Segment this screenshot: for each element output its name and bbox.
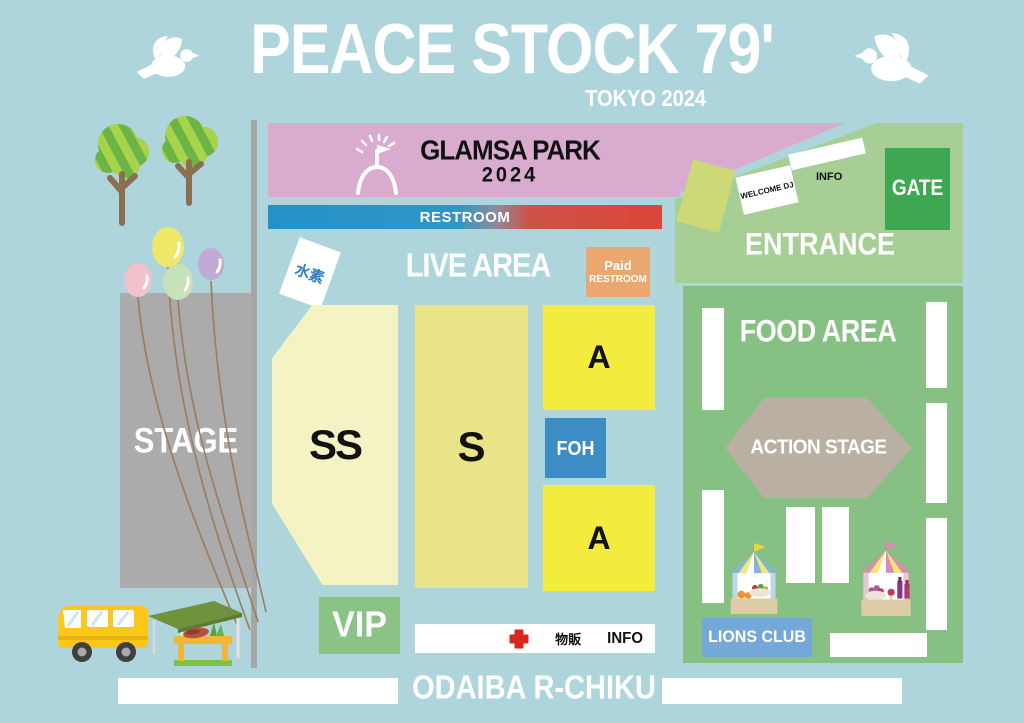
food-stall-tent-icon: [728, 542, 780, 616]
paid-restroom-line2: RESTROOM: [589, 274, 647, 286]
food-area-label: FOOD AREA: [718, 316, 918, 347]
park-year: 2024: [482, 165, 539, 186]
balloons-icon: [118, 212, 268, 632]
block-vip: VIP: [319, 597, 400, 654]
footer-label: ODAIBA R-CHIKU: [404, 672, 664, 705]
lions-club-label: LIONS CLUB: [708, 628, 806, 647]
block-foh-label: FOH: [557, 436, 595, 460]
food-stall-row: [822, 507, 849, 583]
block-a-lower-label: A: [587, 520, 610, 557]
food-stall-row: [830, 633, 927, 657]
block-foh: FOH: [545, 418, 606, 478]
gate-flag-icon: [350, 133, 404, 195]
block-vip-label: VIP: [332, 605, 387, 646]
service-bar: 物販 INFO: [415, 624, 655, 653]
entrance-label: ENTRANCE: [690, 229, 950, 260]
block-a-upper-label: A: [587, 339, 610, 376]
park-name: GLAMSA PARK: [420, 136, 600, 163]
block-a-upper: A: [543, 305, 655, 410]
paid-restroom-line1: Paid: [604, 259, 631, 274]
park-banner-text: GLAMSA PARK 2024: [420, 137, 600, 185]
food-stall-row: [702, 308, 724, 410]
dove-icon: [846, 28, 930, 104]
block-a-lower: A: [543, 485, 655, 591]
block-s-label: S: [457, 423, 485, 471]
food-stall-row: [926, 302, 947, 388]
food-stall-row: [926, 518, 947, 630]
action-stage-label: ACTION STAGE: [750, 436, 886, 459]
food-stall-row: [926, 403, 947, 503]
block-s: S: [415, 305, 528, 588]
drink-stall-tent-icon: [856, 540, 916, 618]
lions-club-block: LIONS CLUB: [702, 618, 812, 657]
food-stall-row: [786, 507, 815, 583]
footer-bar-left: [118, 678, 398, 704]
first-aid-cross-icon: [509, 629, 529, 649]
service-info-label: INFO: [607, 630, 643, 648]
footer-bar-right: [662, 678, 902, 704]
water-sign: 水素: [279, 237, 341, 308]
page-subtitle: TOKYO 2024: [430, 88, 706, 111]
bus-icon: [56, 596, 152, 668]
welcome-dj-label: WELCOME DJ: [740, 180, 795, 201]
merch-label: 物販: [555, 629, 581, 648]
dove-icon: [134, 32, 208, 96]
paid-restroom-block: Paid RESTROOM: [586, 247, 650, 297]
gate-block: GATE: [885, 148, 950, 230]
block-ss-label: SS: [309, 421, 361, 469]
gate-label: GATE: [892, 176, 943, 201]
food-stall-row: [702, 490, 724, 603]
venue-map: PEACE STOCK 79' TOKYO 2024: [0, 0, 1024, 723]
block-ss: SS: [272, 305, 398, 585]
entrance-info-label: INFO: [816, 167, 842, 185]
live-area-label: LIVE AREA: [398, 250, 558, 283]
tree-icon: [92, 118, 154, 226]
market-stall-icon: [146, 596, 246, 668]
restroom-bar: RESTROOM: [268, 205, 662, 229]
restroom-label: RESTROOM: [420, 209, 511, 226]
tree-icon: [157, 110, 221, 206]
water-sign-label: 水素: [292, 258, 327, 288]
